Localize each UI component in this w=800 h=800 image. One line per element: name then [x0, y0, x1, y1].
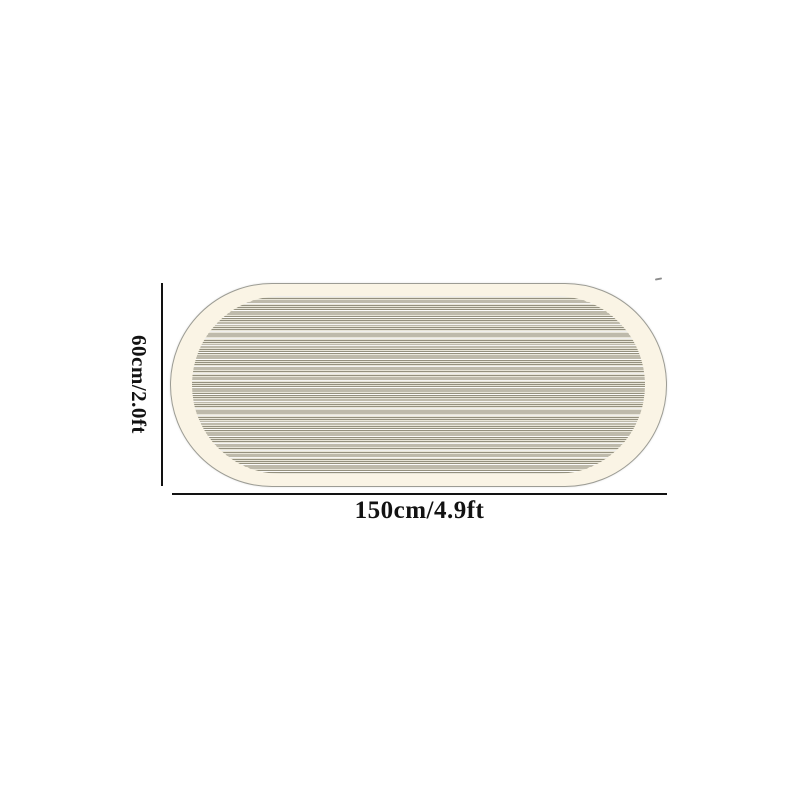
stray-mark: [655, 277, 662, 280]
height-dimension-label: 60cm/2.0ft: [126, 283, 151, 486]
width-dimension-label: 150cm/4.9ft: [172, 497, 667, 525]
rug-size-diagram: 60cm/2.0ft 150cm/4.9ft: [0, 0, 800, 800]
width-dimension-line: [172, 493, 667, 495]
height-dimension-line: [161, 283, 163, 486]
rug-stripe-texture: [192, 296, 645, 474]
rug: [170, 283, 667, 487]
